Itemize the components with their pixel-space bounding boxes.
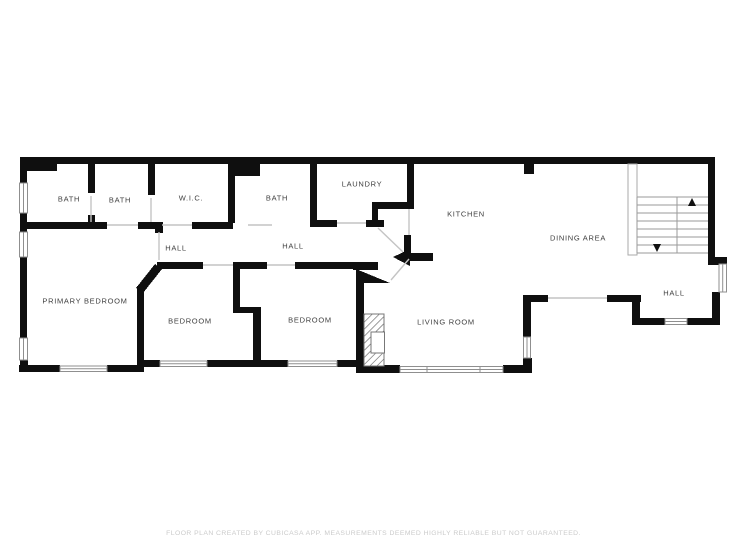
- wall-bed2-top: [295, 262, 353, 269]
- room-label-wic: W.I.C.: [179, 194, 204, 203]
- wall-top-stub-a: [235, 160, 260, 176]
- room-label-bath-3: BATH: [266, 194, 288, 203]
- wall-hall-bottom-a: [632, 318, 665, 325]
- wall-bath3-laundry: [310, 157, 317, 227]
- wall-beds-bottom-b: [207, 360, 288, 367]
- wall-kitchen-arrow: [393, 249, 410, 266]
- wall-bed1-top-a: [157, 262, 203, 269]
- room-label-bath-1: BATH: [58, 195, 80, 204]
- wall-laundry-inner-h: [372, 202, 413, 209]
- room-label-hall-left: HALL: [165, 244, 187, 253]
- stairs-stringer-wall: [628, 164, 637, 255]
- floorplan-drawing: [0, 0, 747, 560]
- stairs: [628, 164, 708, 255]
- wall-top-stub-b: [524, 160, 534, 174]
- wall-bath2-wic: [148, 157, 155, 195]
- wall-kitchen-left: [407, 157, 414, 209]
- fireplace-firebox: [371, 332, 385, 353]
- wall-bathrow-1: [27, 222, 107, 229]
- room-label-bath-2: BATH: [109, 196, 131, 205]
- wall-beds-bottom-a: [144, 360, 160, 367]
- wall-left-c: [20, 257, 27, 338]
- wall-bed2-top-right: [353, 262, 378, 270]
- room-label-kitchen: KITCHEN: [447, 210, 485, 219]
- wall-right-upper: [708, 157, 715, 264]
- room-label-hall-mid: HALL: [282, 242, 304, 251]
- wall-wic-bath3: [228, 157, 235, 223]
- room-label-bedroom-2: BEDROOM: [288, 316, 332, 325]
- wall-left-b: [20, 213, 27, 232]
- footer-disclaimer: FLOOR PLAN CREATED BY CUBICASA APP. MEAS…: [0, 530, 747, 537]
- room-label-primary-bedroom: PRIMARY BEDROOM: [42, 297, 127, 306]
- wall-top: [20, 157, 715, 164]
- wall-living-right: [523, 295, 531, 337]
- room-label-hall-right: HALL: [663, 289, 685, 298]
- wall-bathrow-3: [192, 222, 233, 229]
- room-label-dining-area: DINING AREA: [550, 234, 606, 243]
- floorplan-screenshot: BATH BATH W.I.C. BATH LAUNDRY HALL HALL …: [0, 0, 747, 560]
- wall-primary-bottom-b: [107, 365, 144, 372]
- wall-living-right-corner: [523, 358, 532, 373]
- wall-primary-bottom-a: [19, 365, 60, 372]
- room-label-laundry: LAUNDRY: [342, 180, 383, 189]
- wall-bathrow-stub: [155, 222, 163, 233]
- wall-bed1-bed2-lower: [253, 307, 261, 367]
- stairs-down-arrow-icon: [653, 244, 661, 252]
- wall-bed1-bed2-upper: [233, 262, 240, 313]
- stairs-treads: [637, 197, 708, 253]
- wall-bed2-right: [356, 278, 364, 366]
- wall-bath1-bath2: [88, 163, 95, 193]
- room-label-bedroom-1: BEDROOM: [168, 317, 212, 326]
- wall-primary-right: [137, 286, 144, 372]
- wall-laundry-bottom: [310, 220, 337, 227]
- room-label-living-room: LIVING ROOM: [417, 318, 475, 327]
- stairs-up-arrow-icon: [688, 198, 696, 206]
- fireplace: [364, 314, 385, 366]
- wall-left-a: [20, 157, 27, 183]
- wall-laundry-foot: [366, 220, 384, 227]
- wall-hall-bottom-b: [687, 318, 720, 325]
